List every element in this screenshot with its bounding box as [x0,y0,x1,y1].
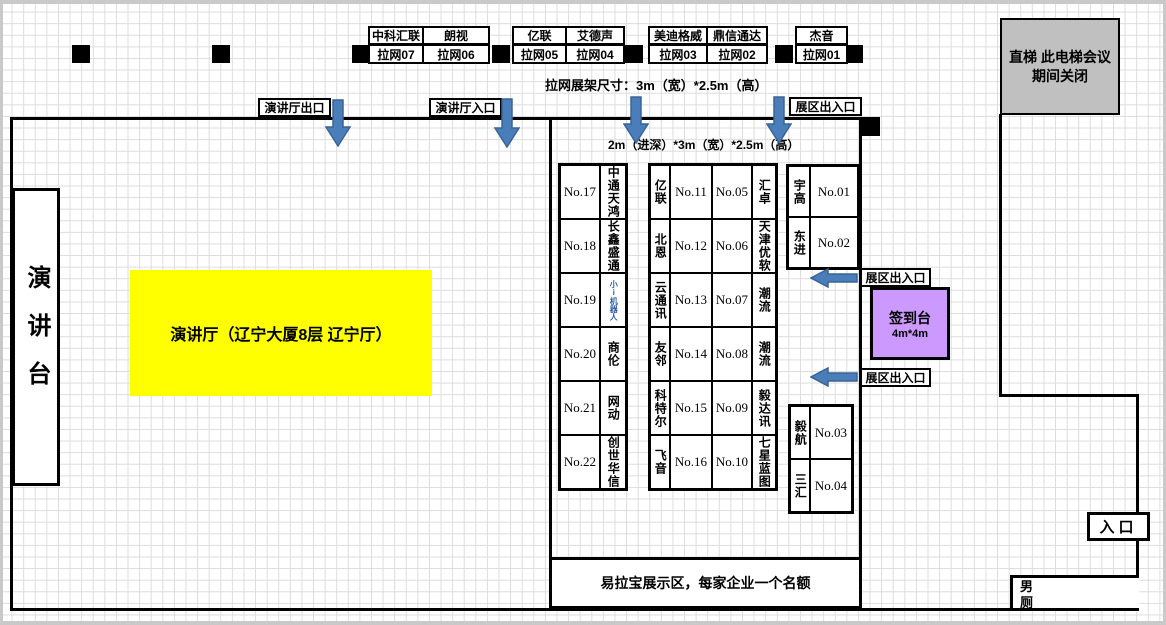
booth-company: 潮流 [758,341,771,367]
expo-gate-label-low: 展区出入口 [860,368,931,387]
pillar [72,45,90,63]
booth-block-right-top: 宇高 No.01 东进 No.02 [786,164,860,270]
hall-exit-label: 演讲厅出口 [258,98,331,117]
mens-room-label: 男厕 [1020,579,1035,610]
signin-desk: 签到台 4m*4m [870,287,950,360]
stand-company: 美迪格威 [648,26,708,45]
stand-net: 拉网01 [795,44,848,64]
booth-block-right-bottom: 毅航 No.03 三汇 No.04 [788,404,854,514]
booth-no: No.10 [712,435,752,489]
booth-no: No.18 [560,219,600,273]
wall-top [10,117,862,120]
stand-company: 中科汇联 [368,26,424,45]
page-edge-top [0,0,1166,4]
wall-step [999,394,1139,397]
stand-company: 艾德声 [565,26,625,45]
booth-no: No.11 [670,165,712,219]
stand-net: 拉网03 [648,44,708,64]
left-arrow-icon [810,366,858,388]
mens-room: 男厕 [1010,575,1139,608]
booth-no: No.17 [560,165,600,219]
booth-company: 北恩 [654,233,667,259]
booth-no: No.04 [810,459,852,512]
booth-block-left: No.17 中通天鸿 No.18 长鑫盛通 No.19 小i机器人 No.20 … [558,163,628,491]
corner-pillar [861,117,880,136]
stand-net: 拉网02 [706,44,768,64]
stand-company: 鼎信通达 [706,26,768,45]
down-arrow-icon [623,96,649,144]
pillar [212,45,230,63]
booth-company: 科特尔 [654,389,667,428]
pillar [625,45,643,63]
booth-company: 三汇 [794,473,807,499]
hall-entrance-label: 演讲厅入口 [429,98,502,117]
booth-company: 毅航 [794,420,807,446]
booth-no: No.03 [810,406,852,459]
stage-area: 演讲台 [12,188,60,486]
booth-company: 友邻 [654,341,667,367]
pillar [775,45,793,63]
stand-company: 亿联 [512,26,567,45]
stand-net: 拉网06 [422,44,490,64]
page-edge-bottom [0,621,1166,625]
signin-label: 签到台 [889,308,931,328]
booth-no: No.15 [670,381,712,435]
stand-net: 拉网04 [565,44,625,64]
booth-company: 宇高 [793,179,806,205]
booth-company: 商伦 [607,341,620,367]
booth-company: 中通天鸿 [607,166,620,218]
booth-no: No.21 [560,381,600,435]
left-arrow-icon [810,267,858,289]
stand-company: 朗视 [422,26,490,45]
booth-no: No.22 [560,435,600,489]
signin-size: 4m*4m [892,328,928,340]
banner-area-label: 易拉宝展示区，每家企业一个名额 [601,573,811,593]
entrance-box: 入口 [1087,512,1150,541]
stand-net: 拉网05 [512,44,567,64]
wall-middle [549,117,552,611]
booth-block-middle: 亿联 No.11 No.05 汇卓 北恩 No.12 No.06 天津优软 云通… [648,163,778,491]
booth-no: No.06 [712,219,752,273]
booth-no: No.02 [810,217,858,268]
booth-company: 长鑫盛通 [607,220,620,272]
stand-net: 拉网07 [368,44,424,64]
booth-no: No.12 [670,219,712,273]
booth-no: No.20 [560,327,600,381]
booth-no: No.14 [670,327,712,381]
stage-label: 演讲台 [24,265,48,409]
expo-gate-label-top: 展区出入口 [789,97,862,116]
rack-size-note: 拉网展架尺寸：3m（宽）*2.5m（高） [545,75,767,94]
page-edge-left [0,0,3,625]
booth-company: 创世华信 [607,436,620,488]
booth-no: No.19 [560,273,600,327]
down-arrow-icon [325,99,351,147]
booth-no: No.07 [712,273,752,327]
booth-company: 毅达讯 [758,389,771,428]
booth-no: No.09 [712,381,752,435]
speech-hall-label: 演讲厅（辽宁大厦8层 辽宁厅） [170,321,391,345]
booth-company: 东进 [793,230,806,256]
booth-no: No.13 [670,273,712,327]
floor-plan-canvas: 中科汇联 朗视 亿联 艾德声 美迪格威 鼎信通达 杰音 拉网07 拉网06 拉网… [0,0,1166,625]
booth-company: 天津优软 [758,220,771,272]
elevator-area: 直梯 此电梯会议期间关闭 [1000,18,1120,115]
pillar [492,45,510,63]
wall-corridor [999,114,1002,397]
down-arrow-icon [766,96,792,144]
down-arrow-icon [494,98,520,148]
expo-gate-label-mid: 展区出入口 [860,268,931,287]
booth-no: No.08 [712,327,752,381]
banner-display-area: 易拉宝展示区，每家企业一个名额 [549,557,862,609]
booth-company: 亿联 [654,179,667,205]
booth-no: No.16 [670,435,712,489]
booth-company: 小i机器人 [609,280,617,321]
booth-company: 七星蓝图 [758,436,771,488]
booth-no: No.01 [810,166,858,217]
booth-company: 潮流 [758,287,771,313]
booth-company: 网动 [607,395,620,421]
booth-company: 汇卓 [758,179,771,205]
speech-hall: 演讲厅（辽宁大厦8层 辽宁厅） [130,270,432,396]
booth-company: 飞音 [654,449,667,475]
booth-no: No.05 [712,165,752,219]
booth-company: 云通讯 [654,281,667,320]
elevator-label: 直梯 此电梯会议期间关闭 [1008,48,1112,86]
stand-company: 杰音 [795,26,848,45]
